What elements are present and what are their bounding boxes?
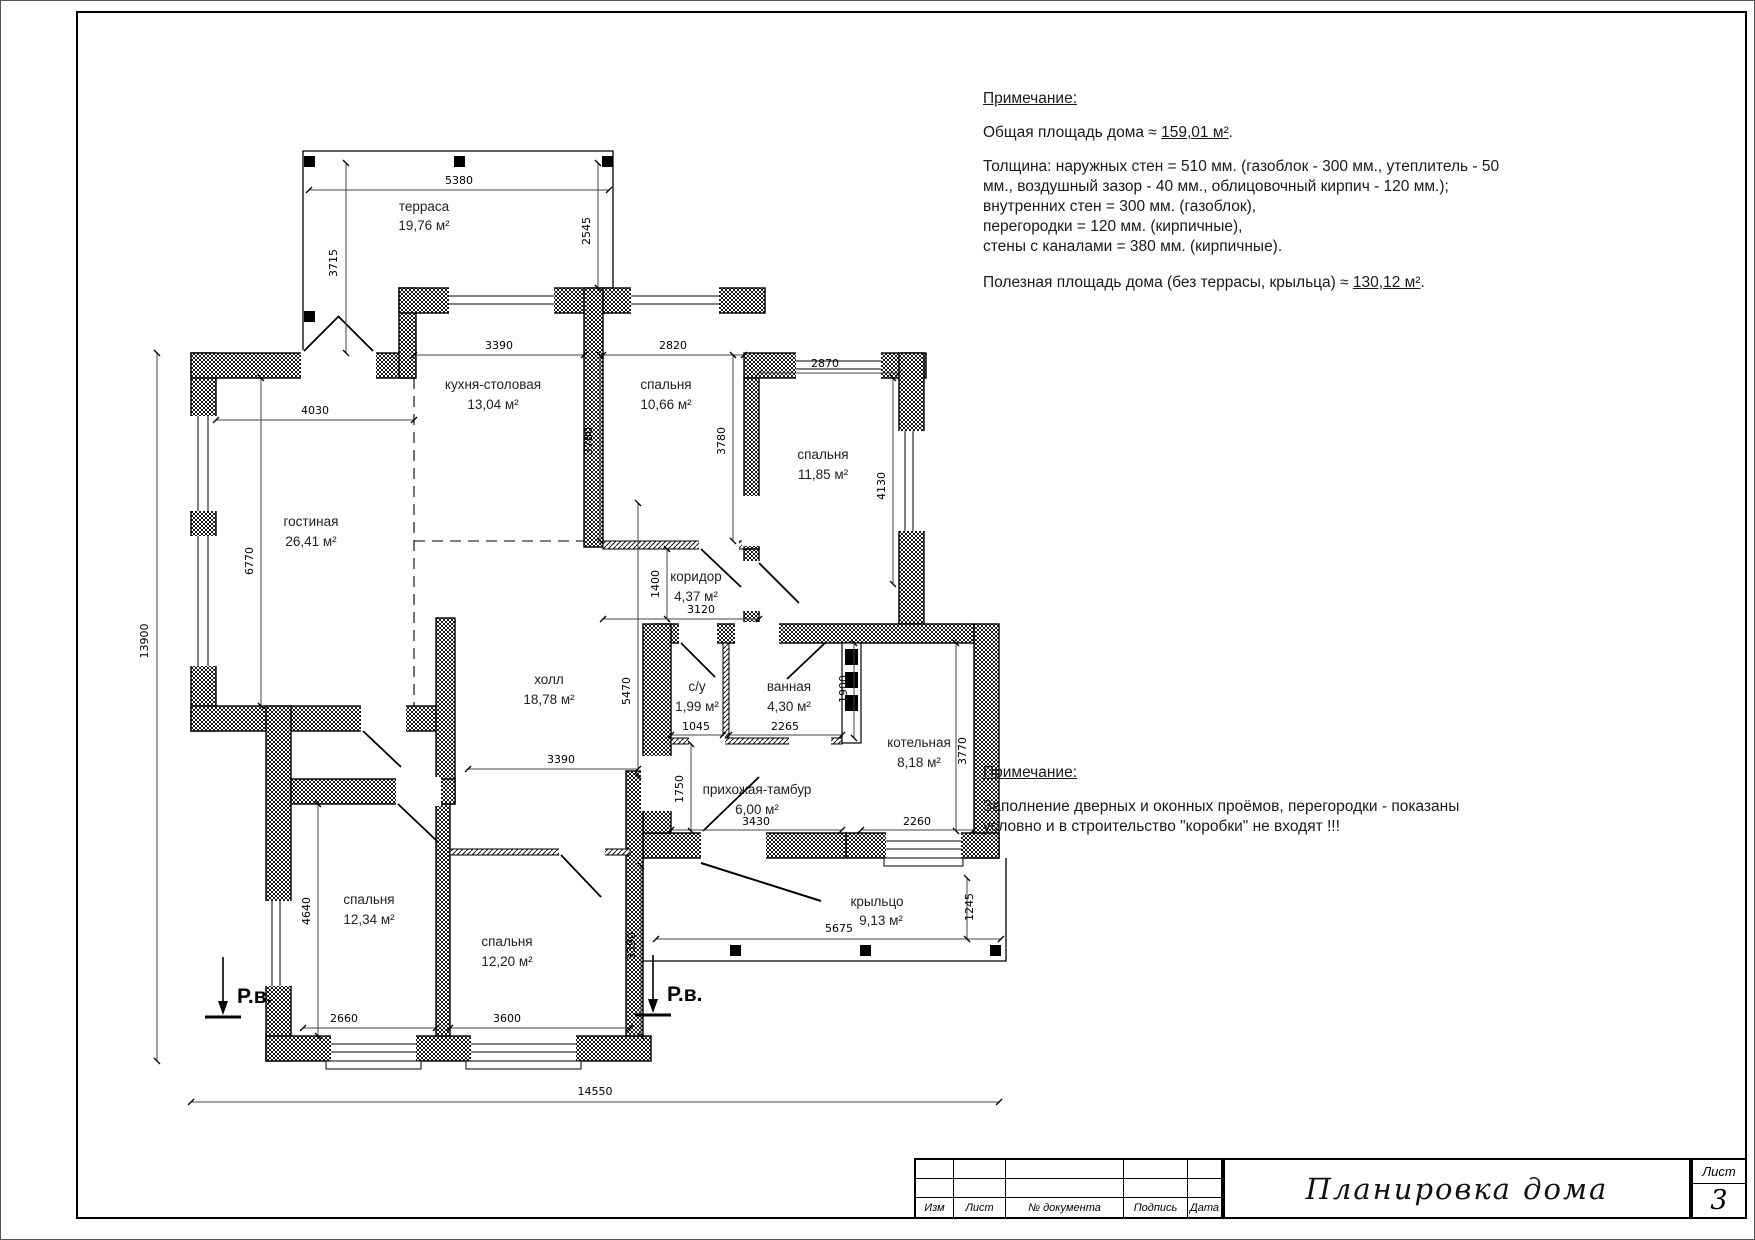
room-label-boiler: котельная [887, 735, 951, 750]
dim-label: 2820 [659, 339, 687, 352]
dim-label: 2260 [903, 815, 931, 828]
dim-label: 3780 [582, 427, 595, 455]
total-area-value: 159,01 м² [1161, 124, 1229, 141]
room-area-living: 26,41 м² [285, 534, 337, 549]
room-area-corridor: 4,37 м² [674, 589, 718, 604]
dim-label: 13900 [138, 624, 151, 659]
room-area-bathroom: 4,30 м² [767, 699, 811, 714]
dim-label: 1900 [837, 675, 850, 703]
dim-label: 2545 [580, 217, 593, 245]
revision-cell [1188, 1160, 1221, 1179]
notes-top-heading: Примечание: [983, 89, 1543, 109]
dim-label: 3390 [625, 932, 638, 960]
dim-label: 3600 [493, 1012, 521, 1025]
revision-cell [954, 1160, 1006, 1179]
level-marker-label: Р.в. [237, 985, 272, 1008]
drawing-title-cell: Планировка дома [1223, 1158, 1691, 1219]
dim-label: 3390 [547, 753, 575, 766]
porch-outline [643, 858, 1006, 961]
room-area-bedroom2: 11,85 м² [798, 467, 849, 482]
total-area-line: Общая площадь дома ≈ 159,01 м². [983, 123, 1543, 143]
revision-cell [954, 1179, 1006, 1198]
sheet-number: 3 [1693, 1184, 1745, 1217]
notes-middle-body-line2: условно и в строительство "коробки" не в… [983, 817, 1543, 837]
room-area-bedroom1: 10,66 м² [640, 397, 692, 412]
sheet-label: Лист [1693, 1160, 1745, 1184]
dim-label: 2870 [811, 357, 839, 370]
room-label-bedroom4: спальня [481, 934, 532, 949]
column-header-izm: Изм [916, 1198, 954, 1217]
total-area-suffix: . [1229, 124, 1233, 141]
revision-cell [1006, 1179, 1124, 1198]
dim-label: 4640 [300, 897, 313, 925]
column-header-data: Дата [1188, 1198, 1221, 1217]
drawing-title: Планировка дома [1306, 1172, 1609, 1206]
dim-label: 3780 [715, 427, 728, 455]
dim-label: 3120 [687, 603, 715, 616]
dim-label: 1045 [682, 720, 710, 733]
dim-label: 1400 [649, 570, 662, 598]
dim-label: 2265 [771, 720, 799, 733]
room-label-bedroom3: спальня [343, 892, 394, 907]
notes-top: Примечание: Общая площадь дома ≈ 159,01 … [983, 89, 1543, 293]
drawing-sheet: 5380 3715 2545 4030 3390 2820 3780 3780 … [0, 0, 1755, 1240]
sheet-number-cell: Лист 3 [1691, 1158, 1747, 1219]
revision-cell [916, 1160, 954, 1179]
room-label-porch: крыльцо [850, 894, 903, 909]
useful-area-line: Полезная площадь дома (без террасы, крыл… [983, 273, 1543, 293]
room-label-wc: с/у [688, 679, 706, 694]
dim-label: 14550 [578, 1085, 613, 1098]
room-area-hall: 18,78 м² [523, 692, 575, 707]
room-label-hall: холл [534, 672, 564, 687]
dim-label: 3770 [956, 737, 969, 765]
useful-area-value: 130,12 м² [1353, 274, 1421, 291]
dim-label: 5675 [825, 922, 853, 935]
wall-thickness-paragraph: Толщина: наружных стен = 510 мм. (газобл… [983, 157, 1543, 257]
dim-label: 1750 [673, 775, 686, 803]
revision-cell [1188, 1179, 1221, 1198]
revision-cell [1006, 1160, 1124, 1179]
notes-middle: Примечание: Заполнение дверных и оконных… [983, 763, 1543, 837]
room-area-terrace: 19,76 м² [398, 218, 450, 233]
dim-label: 1245 [963, 893, 976, 921]
thickness-line: мм., воздушный зазор - 40 мм., облицовоч… [983, 177, 1543, 197]
level-marker-left: Р.в. [205, 957, 272, 1017]
column-header-list: Лист [954, 1198, 1006, 1217]
level-marker-right: Р.в. [635, 955, 702, 1015]
room-label-kitchen: кухня-столовая [445, 377, 541, 392]
room-area-wc: 1,99 м² [675, 699, 719, 714]
dim-label: 2660 [330, 1012, 358, 1025]
useful-area-suffix: . [1420, 274, 1424, 291]
room-area-kitchen: 13,04 м² [467, 397, 519, 412]
dim-label: 4130 [875, 472, 888, 500]
room-label-terrace: терраса [399, 199, 450, 214]
room-area-boiler: 8,18 м² [897, 755, 941, 770]
room-label-living: гостиная [284, 514, 339, 529]
room-area-bedroom3: 12,34 м² [343, 912, 395, 927]
dim-label: 5470 [620, 677, 633, 705]
column-header-docnum: № документа [1006, 1198, 1124, 1217]
room-label-entry: прихожая-тамбур [703, 782, 812, 797]
column-header-podpis: Подпись [1124, 1198, 1188, 1217]
room-label-bathroom: ванная [767, 679, 811, 694]
room-label-corridor: коридор [670, 569, 722, 584]
notes-middle-heading: Примечание: [983, 763, 1543, 783]
room-label-bedroom1: спальня [640, 377, 691, 392]
thickness-line: Толщина: наружных стен = 510 мм. (газобл… [983, 157, 1543, 177]
revision-cell [916, 1179, 954, 1198]
room-area-bedroom4: 12,20 м² [481, 954, 533, 969]
dim-label: 4030 [301, 404, 329, 417]
useful-area-prefix: Полезная площадь дома (без террасы, крыл… [983, 274, 1353, 291]
thickness-line: стены с каналами = 380 мм. (кирпичные). [983, 237, 1543, 257]
dim-label: 5380 [445, 174, 473, 187]
room-area-entry: 6,00 м² [735, 802, 779, 817]
porch-leader-line [701, 863, 821, 901]
dim-label: 3390 [485, 339, 513, 352]
title-block-revision-table: Изм Лист № документа Подпись Дата [914, 1158, 1223, 1219]
room-label-bedroom2: спальня [797, 447, 848, 462]
revision-cell [1124, 1179, 1188, 1198]
total-area-prefix: Общая площадь дома ≈ [983, 124, 1161, 141]
room-area-porch: 9,13 м² [859, 913, 903, 928]
dim-label: 6770 [243, 547, 256, 575]
level-marker-label: Р.в. [667, 983, 702, 1006]
notes-middle-body-line1: Заполнение дверных и оконных проёмов, пе… [983, 797, 1543, 817]
revision-cell [1124, 1160, 1188, 1179]
thickness-line: внутренних стен = 300 мм. (газоблок), [983, 197, 1543, 217]
dim-label: 3715 [327, 249, 340, 277]
thickness-line: перегородки = 120 мм. (кирпичные), [983, 217, 1543, 237]
